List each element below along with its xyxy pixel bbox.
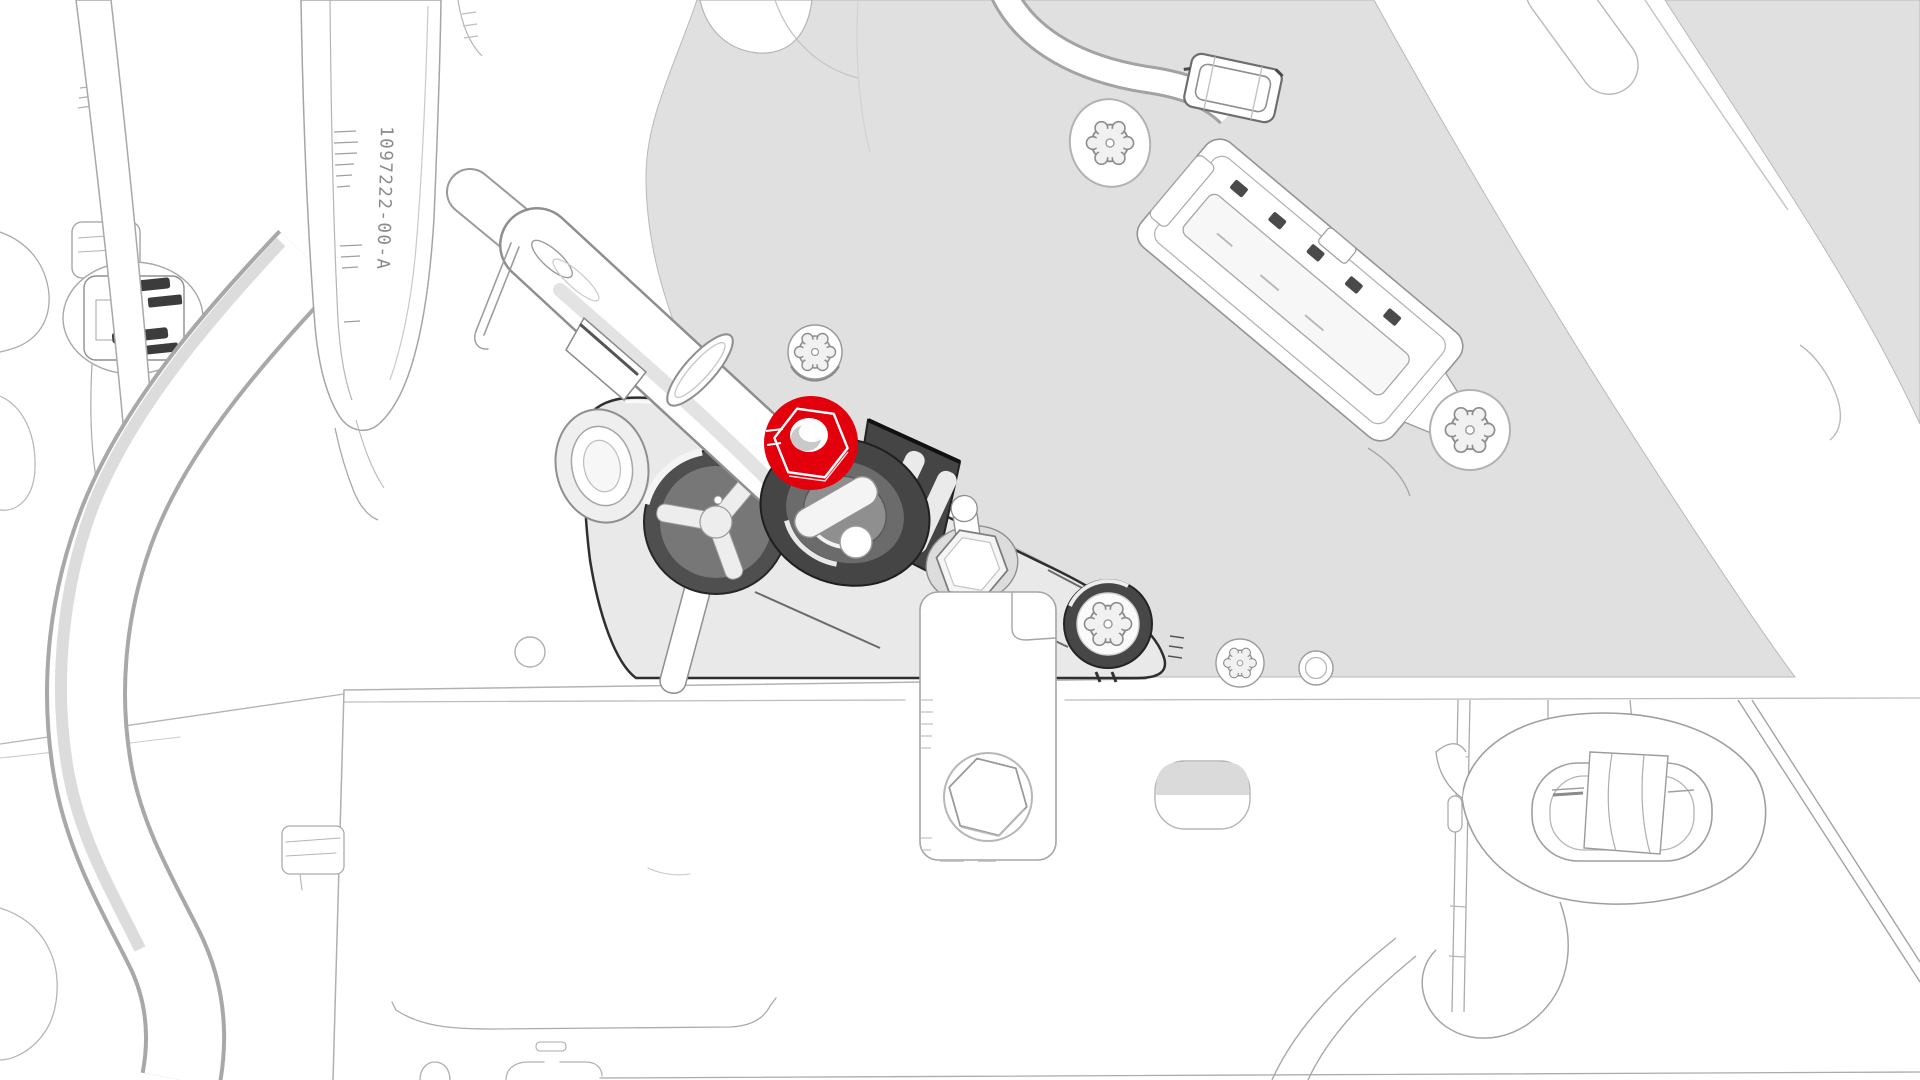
hanging-bracket-plate (920, 592, 1056, 861)
frame-small-slot (536, 1042, 566, 1051)
part-number-label: 1097222-00-A (372, 126, 396, 271)
ball-stud-dome (840, 526, 872, 558)
panel-fastener (1216, 639, 1264, 687)
technical-illustration: 1097222-00-A (0, 0, 1920, 1080)
torx-bolt-free (788, 325, 842, 381)
grommet-block (1584, 752, 1668, 854)
panel-ring (1299, 651, 1333, 685)
oval-slot (1155, 761, 1250, 829)
hex-head-bolt (944, 753, 1032, 841)
highlighted-flange-nut (764, 396, 858, 490)
illustration-stage: 1097222-00-A (0, 0, 1920, 1080)
frame-hole (515, 637, 545, 667)
left-frame-connector (282, 826, 344, 874)
torx-bolt-right (1430, 390, 1510, 470)
